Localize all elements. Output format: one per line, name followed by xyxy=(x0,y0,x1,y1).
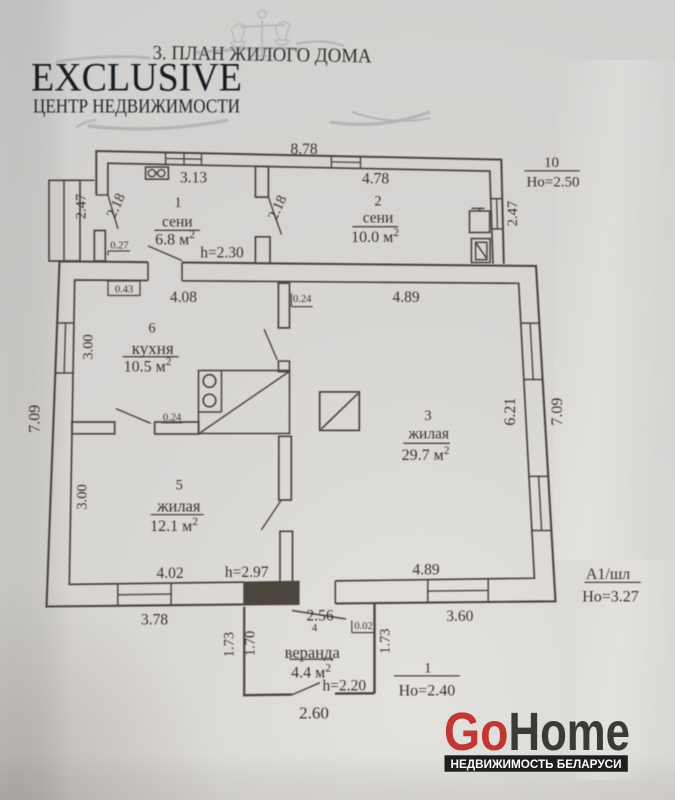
svg-text:сени: сени xyxy=(363,210,394,227)
svg-text:сени: сени xyxy=(162,213,193,230)
svg-text:5: 5 xyxy=(176,478,183,494)
svg-text:3.00: 3.00 xyxy=(74,484,90,509)
svg-text:10: 10 xyxy=(544,155,559,171)
svg-text:EXCLUSIVE: EXCLUSIVE xyxy=(31,55,242,100)
svg-text:Но=2.50: Но=2.50 xyxy=(526,175,579,191)
svg-text:кухня: кухня xyxy=(132,339,174,358)
svg-text:Но=2.40: Но=2.40 xyxy=(399,682,456,699)
svg-text:0.02: 0.02 xyxy=(354,621,372,632)
svg-text:h=2.20: h=2.20 xyxy=(322,677,366,694)
svg-text:4.02: 4.02 xyxy=(156,565,183,582)
svg-text:1.70: 1.70 xyxy=(243,631,259,656)
svg-text:6.8 м2: 6.8 м2 xyxy=(155,229,195,248)
svg-text:2.47: 2.47 xyxy=(505,201,521,226)
svg-text:h=2.30: h=2.30 xyxy=(200,244,244,261)
svg-text:0.24: 0.24 xyxy=(293,294,312,305)
svg-text:7.09: 7.09 xyxy=(26,405,43,433)
svg-text:ЦЕНТР НЕДВИЖИМОСТИ: ЦЕНТР НЕДВИЖИМОСТИ xyxy=(33,96,240,118)
svg-text:2: 2 xyxy=(374,193,381,209)
svg-text:3.60: 3.60 xyxy=(446,608,473,625)
svg-text:1.73: 1.73 xyxy=(378,629,394,654)
svg-text:0.27: 0.27 xyxy=(110,240,128,251)
svg-text:Go: Go xyxy=(444,703,509,762)
svg-text:29.7 м2: 29.7 м2 xyxy=(402,445,450,464)
svg-text:3.78: 3.78 xyxy=(141,611,168,628)
svg-text:10.0 м2: 10.0 м2 xyxy=(351,227,399,246)
svg-text:2.47: 2.47 xyxy=(74,194,90,219)
svg-text:А1/шл: А1/шл xyxy=(586,566,630,583)
svg-text:12.1 м2: 12.1 м2 xyxy=(150,516,198,535)
svg-text:h=2.97: h=2.97 xyxy=(225,564,269,581)
svg-text:1.73: 1.73 xyxy=(221,632,237,657)
svg-text:8.78: 8.78 xyxy=(290,141,317,158)
svg-text:3: 3 xyxy=(424,408,431,424)
svg-text:4.89: 4.89 xyxy=(412,562,439,579)
svg-text:0.43: 0.43 xyxy=(115,285,133,296)
svg-text:3.00: 3.00 xyxy=(81,334,97,359)
svg-text:Но=3.27: Но=3.27 xyxy=(582,589,639,606)
svg-text:1: 1 xyxy=(424,660,432,676)
svg-text:6: 6 xyxy=(148,321,155,337)
svg-text:4.78: 4.78 xyxy=(362,171,389,188)
svg-text:жилая: жилая xyxy=(156,497,201,516)
svg-text:2.56: 2.56 xyxy=(306,608,333,625)
svg-text:10.5 м2: 10.5 м2 xyxy=(124,356,172,375)
svg-text:2.60: 2.60 xyxy=(299,704,329,723)
svg-text:6.21: 6.21 xyxy=(502,398,519,426)
svg-text:4: 4 xyxy=(312,622,318,634)
svg-text:3.13: 3.13 xyxy=(180,170,207,187)
svg-text:7.09: 7.09 xyxy=(549,398,566,426)
svg-text:4.08: 4.08 xyxy=(170,289,197,306)
svg-text:4.89: 4.89 xyxy=(392,289,419,306)
svg-text:Home: Home xyxy=(509,703,631,762)
svg-text:0.24: 0.24 xyxy=(163,413,182,424)
svg-text:жилая: жилая xyxy=(407,426,449,443)
svg-text:1: 1 xyxy=(174,195,181,211)
svg-text:НЕДВИЖИМОСТЬ БЕЛАРУСИ: НЕДВИЖИМОСТЬ БЕЛАРУСИ xyxy=(451,757,622,771)
